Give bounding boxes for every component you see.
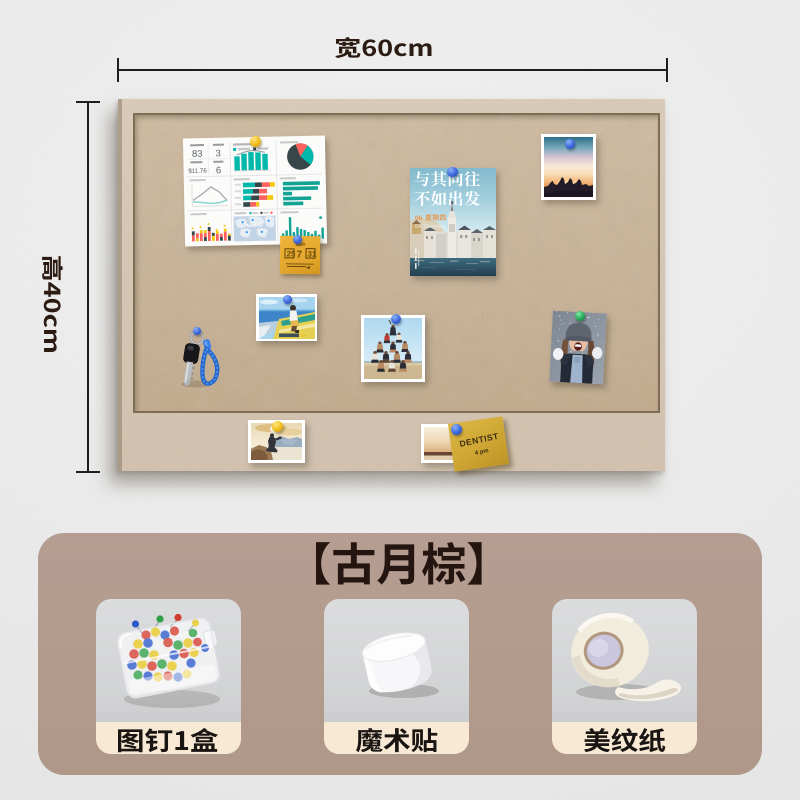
- svg-text:$11.76: $11.76: [188, 167, 207, 174]
- svg-text:NORTH: NORTH: [247, 223, 263, 228]
- svg-text:3: 3: [215, 148, 221, 159]
- svg-text:31: 31: [307, 250, 317, 259]
- svg-text:83: 83: [192, 149, 203, 160]
- svg-text:25: 25: [286, 249, 296, 258]
- svg-text:DENTIST: DENTIST: [459, 431, 500, 449]
- svg-text:6: 6: [216, 165, 222, 176]
- svg-text:4 pm: 4 pm: [474, 448, 489, 457]
- svg-text:7: 7: [296, 249, 302, 260]
- svg-text:06: 06: [415, 215, 423, 222]
- svg-text:04 Thursday: 04 Thursday: [415, 224, 446, 230]
